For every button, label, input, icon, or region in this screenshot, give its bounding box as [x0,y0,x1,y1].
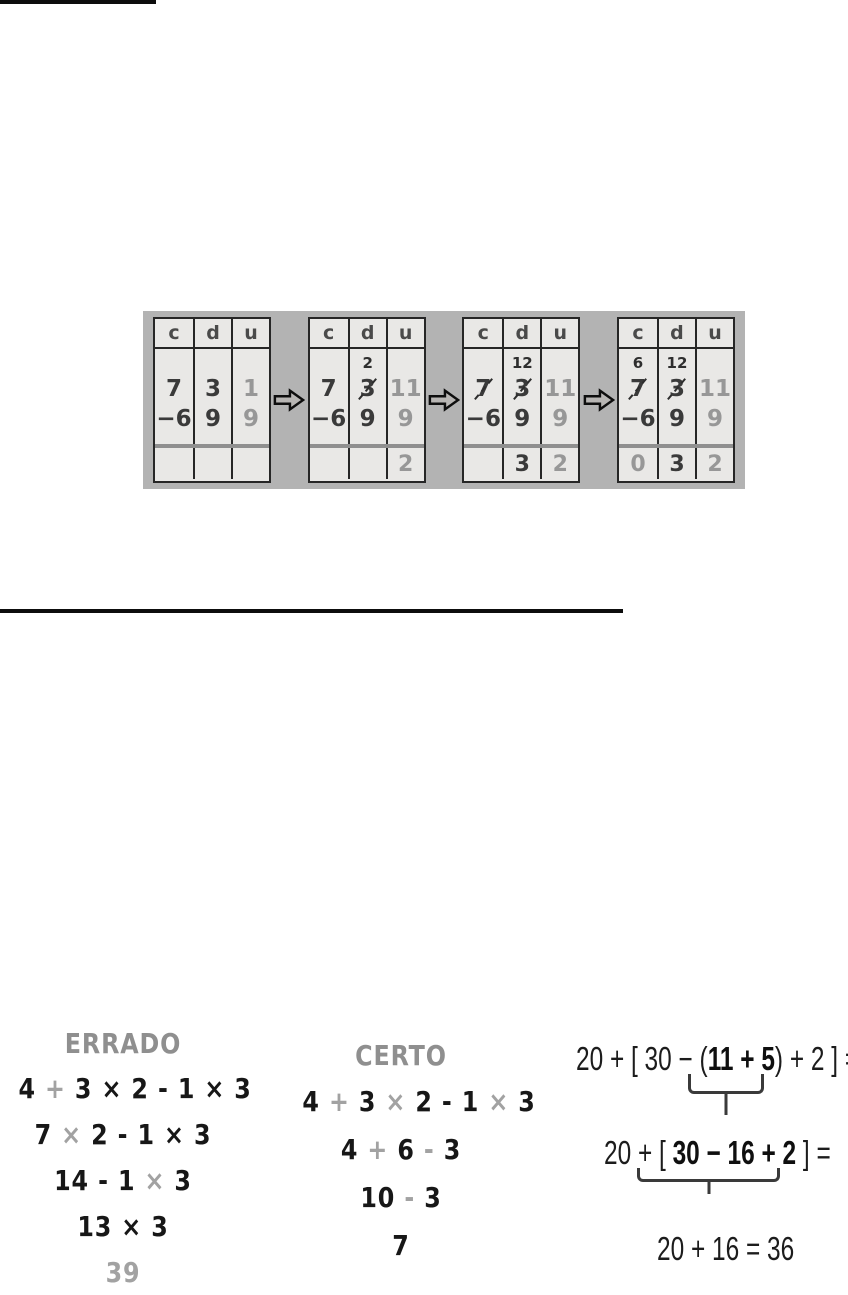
table-cell: 3 [502,445,540,479]
digit: 7 [630,378,646,401]
place-value-table-step-2: cdu27311−6992 [308,317,426,483]
table-cell [464,445,502,479]
subtraction-bar [155,444,269,448]
math-segment: 3 [415,1181,442,1214]
digit: 3 [515,454,530,476]
digit: 9 [398,408,414,431]
table-cell: −6 [155,407,193,445]
table-cell: 7 [155,371,193,407]
digit: 9 [514,408,530,431]
math-segment: - [404,1181,415,1214]
place-value-table-step-4: cdu6127311−699032 [617,317,735,483]
math-segment: 3 [165,1164,192,1197]
table-cell: 3 [657,371,695,407]
digit: 2 [553,454,568,476]
subtraction-bar [619,444,733,448]
math-segment: 20 + 16 = 36 [657,1230,794,1267]
column-header: u [231,319,269,347]
table-cell: −6 [619,407,657,445]
right-arrow-icon [428,387,460,413]
digit: 9 [243,408,259,431]
digit: 2 [707,454,722,476]
math-segment: + [329,1085,350,1118]
table-cell [695,349,733,371]
column-header: d [502,319,540,347]
table-cell: 9 [231,407,269,445]
math-segment: - [424,1133,435,1166]
errado-title: ERRADO [18,1028,227,1060]
digit: 7 [166,378,182,401]
math-segment: 10 [360,1181,404,1214]
column-header: u [695,319,733,347]
digit: 9 [707,408,723,431]
math-segment: × [488,1085,509,1118]
digit: 3 [669,454,684,476]
table-cell: 3 [657,445,695,479]
math-segment: 20 + [ [604,1134,673,1171]
math-line: 7 [302,1222,499,1270]
math-segment: 4 [302,1085,329,1118]
worksheet-page: cdu731−699 cdu27311−6992 cdu127311−69932… [0,0,848,1295]
digit: 0 [630,454,645,476]
underbrace-icon [637,1168,780,1182]
table-cell: 9 [348,407,386,445]
table-cell [193,349,231,371]
brackets-expression-step2: 20 + [ 30 − 16 + 2 ] = [604,1136,831,1169]
table-cell: 9 [386,407,424,445]
digit: 9 [205,408,221,431]
table-cell: 2 [540,445,578,479]
table-cell: 7 [464,371,502,407]
digit: 12 [667,356,688,371]
math-segment: + [367,1133,388,1166]
table-cell: 3 [348,371,386,407]
certo-lines: 4 + 3 × 2 - 1 × 34 + 6 - 310 - 37 [285,1078,517,1270]
digit: −6 [620,408,655,431]
table-cell: 9 [502,407,540,445]
math-segment: 6 [388,1133,424,1166]
math-segment: 3 × 2 - 1 × 3 [66,1072,252,1105]
digit: 1 [243,378,259,401]
table-cell [310,445,348,479]
math-segment: ] = [796,1134,831,1171]
digit: 7 [321,378,337,401]
math-segment: 13 × 3 [77,1210,168,1243]
column-header: u [386,319,424,347]
math-segment: + [45,1072,66,1105]
column-header: c [155,319,193,347]
brackets-expression-result: 20 + 16 = 36 [657,1232,794,1265]
table-cell [155,349,193,371]
underbrace-tail [707,1179,710,1194]
column-header: c [464,319,502,347]
underbrace-tail [725,1091,728,1115]
place-value-table-step-1: cdu731−699 [153,317,271,483]
column-header: c [310,319,348,347]
table-cell: 9 [695,407,733,445]
digit: 3 [205,378,221,401]
table-cell: 7 [310,371,348,407]
table-cell [231,349,269,371]
math-line: 10 - 3 [302,1174,499,1222]
table-cell: 12 [657,349,695,371]
math-segment: 2 - 1 [406,1085,488,1118]
math-line: 4 + 3 × 2 - 1 × 3 [302,1078,499,1126]
math-segment: 3 [509,1085,536,1118]
math-segment: × [61,1118,82,1151]
math-segment: 3 [435,1133,462,1166]
math-segment: 3 [350,1085,386,1118]
column-header: c [619,319,657,347]
table-cell: 11 [540,371,578,407]
table-cell [348,445,386,479]
math-line: 7 × 2 - 1 × 3 [18,1112,227,1158]
table-cell: 11 [695,371,733,407]
table-cell: 7 [619,371,657,407]
table-cell: 9 [657,407,695,445]
digit: 9 [360,408,376,431]
digit: 9 [552,408,568,431]
math-segment: 7 [35,1118,62,1151]
section-divider [0,609,623,613]
table-cell [310,349,348,371]
table-cell: 9 [540,407,578,445]
digit: 2 [362,356,372,371]
digit: 2 [398,454,413,476]
errado-column: ERRADO 4 + 3 × 2 - 1 × 37 × 2 - 1 × 314 … [0,1028,246,1295]
digit: 6 [633,356,643,371]
digit: 11 [699,378,731,401]
digit: −6 [466,408,501,431]
table-cell [540,349,578,371]
digit: 11 [390,378,422,401]
table-cell [464,349,502,371]
table-cell [231,445,269,479]
table-cell: 12 [502,349,540,371]
table-cell: 3 [502,371,540,407]
column-header: d [193,319,231,347]
digit: 3 [360,378,376,401]
table-cell: 6 [619,349,657,371]
column-header: d [348,319,386,347]
table-cell: −6 [310,407,348,445]
underbrace-icon [688,1074,764,1094]
math-segment: 20 + [ 30 − ( [576,1040,708,1077]
math-segment: 11 + 5 [708,1040,775,1077]
table-cell: 1 [231,371,269,407]
math-segment: 14 - 1 [54,1164,144,1197]
math-line: 14 - 1 × 3 [18,1158,227,1204]
table-cell: 3 [193,371,231,407]
math-segment: 7 [392,1229,409,1262]
table-cell: 0 [619,445,657,479]
digit: −6 [311,408,346,431]
math-line: 4 + 6 - 3 [302,1126,499,1174]
math-segment: 39 [106,1256,141,1289]
column-header: d [657,319,695,347]
table-cell [155,445,193,479]
math-line: 39 [18,1250,227,1295]
subtraction-bar [310,444,424,448]
subtraction-bar [464,444,578,448]
math-line: 4 + 3 × 2 - 1 × 3 [18,1066,227,1112]
digit: 11 [544,378,576,401]
math-segment: × [385,1085,406,1118]
digit: 9 [669,408,685,431]
top-partial-rule [0,0,156,4]
digit: −6 [156,408,191,431]
table-cell: −6 [464,407,502,445]
table-cell: 11 [386,371,424,407]
certo-column: CERTO 4 + 3 × 2 - 1 × 34 + 6 - 310 - 37 [285,1040,517,1270]
certo-title: CERTO [302,1040,499,1072]
table-cell [193,445,231,479]
right-arrow-icon [583,387,615,413]
math-segment: 30 − 16 + 2 [673,1134,797,1171]
table-cell: 2 [348,349,386,371]
math-segment: × [145,1164,166,1197]
place-value-table-step-3: cdu127311−69932 [462,317,580,483]
table-cell: 2 [695,445,733,479]
table-cell: 9 [193,407,231,445]
digit: 3 [669,378,685,401]
digit: 12 [512,356,533,371]
digit: 7 [475,378,491,401]
math-segment: ) + 2 ] = [775,1040,848,1077]
subtraction-steps-figure: cdu731−699 cdu27311−6992 cdu127311−69932… [143,311,745,489]
column-header: u [540,319,578,347]
errado-lines: 4 + 3 × 2 - 1 × 37 × 2 - 1 × 314 - 1 × 3… [0,1066,246,1295]
math-line: 13 × 3 [18,1204,227,1250]
table-cell: 2 [386,445,424,479]
brackets-expression-step1: 20 + [ 30 − (11 + 5) + 2 ] = [576,1042,848,1075]
math-segment: 4 [18,1072,45,1105]
table-cell [386,349,424,371]
digit: 3 [514,378,530,401]
right-arrow-icon [273,387,305,413]
math-segment: 4 [341,1133,368,1166]
math-segment: 2 - 1 × 3 [82,1118,211,1151]
